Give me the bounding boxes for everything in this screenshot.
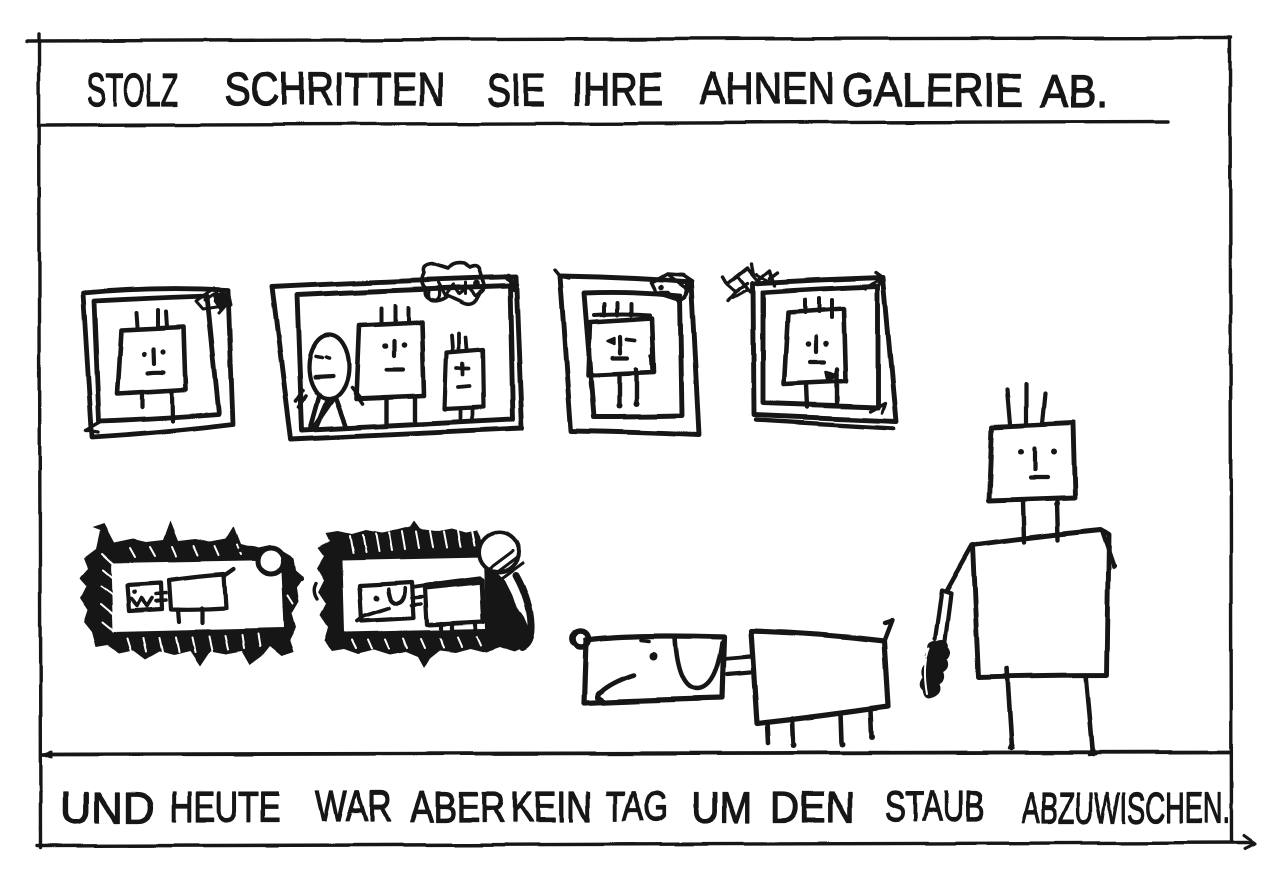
svg-text:AB.: AB. [1040,65,1108,117]
svg-text:KEIN: KEIN [510,783,592,832]
svg-text:GALERIE: GALERIE [842,64,1023,116]
svg-text:ABZUWISCHEN.: ABZUWISCHEN. [1022,784,1230,833]
svg-text:AHNEN: AHNEN [700,62,835,114]
svg-text:IHRE: IHRE [572,63,663,115]
svg-text:DEN: DEN [770,783,855,832]
svg-text:UND: UND [60,784,155,833]
svg-text:TAG: TAG [605,782,668,831]
svg-text:STOLZ: STOLZ [87,64,178,116]
svg-text:STAUB: STAUB [885,782,985,831]
svg-text:SCHRITTEN: SCHRITTEN [225,63,445,115]
svg-text:ABER: ABER [410,783,505,832]
svg-text:HEUTE: HEUTE [170,783,280,832]
svg-text:SIE: SIE [487,64,545,116]
svg-text:WAR: WAR [315,782,392,831]
svg-text:UM: UM [692,784,752,833]
